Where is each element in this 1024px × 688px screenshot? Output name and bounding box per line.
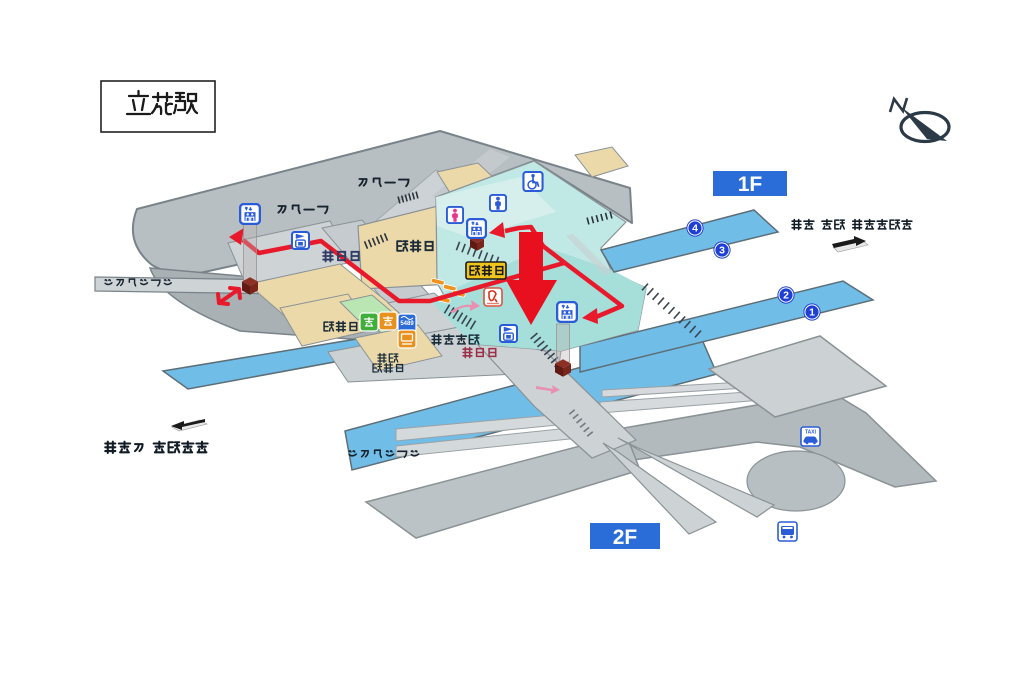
svg-text:1: 1 [809, 307, 815, 319]
svg-text:2F: 2F [613, 526, 638, 549]
svg-text:2: 2 [783, 290, 789, 302]
svg-text:1F: 1F [738, 173, 763, 196]
svg-text:TAXI: TAXI [805, 430, 817, 436]
svg-text:4: 4 [692, 223, 698, 235]
svg-text:3: 3 [719, 245, 725, 257]
svg-text:5489: 5489 [400, 321, 414, 327]
